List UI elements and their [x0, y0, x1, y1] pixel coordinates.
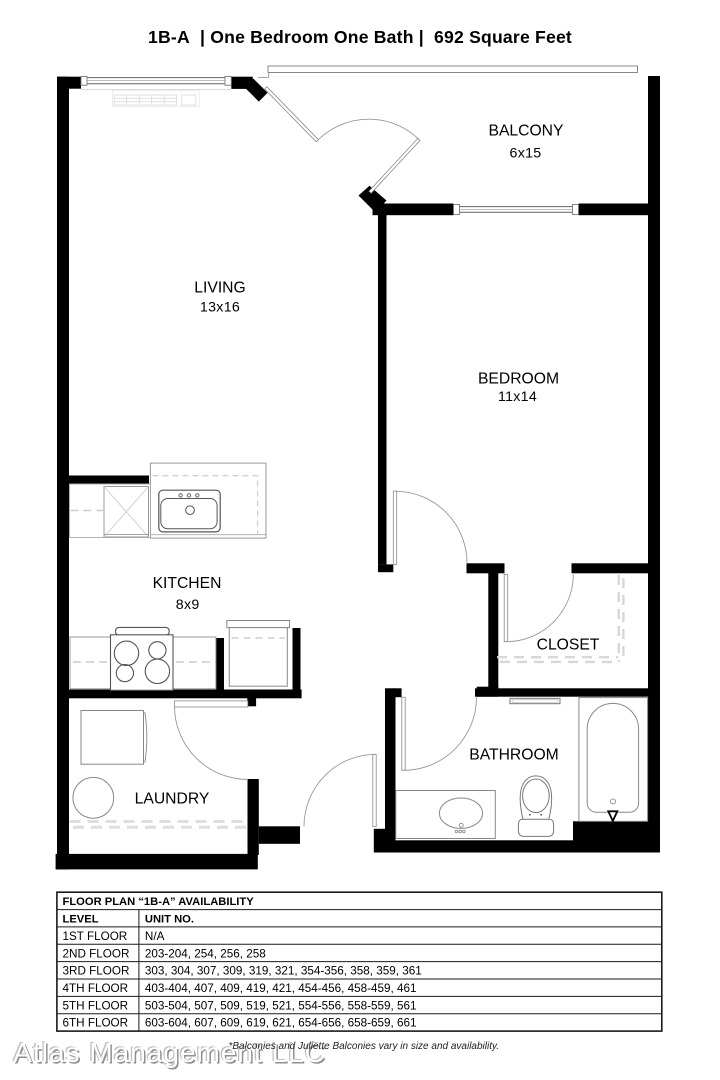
svg-text:603-604, 607, 609, 619, 621, 6: 603-604, 607, 609, 619, 621, 654-656, 65… — [145, 1017, 417, 1030]
svg-text:8x9: 8x9 — [176, 597, 200, 613]
svg-text:*Balconies and Juliette Balcon: *Balconies and Juliette Balconies vary i… — [229, 1041, 500, 1052]
svg-text:1ST FLOOR: 1ST FLOOR — [63, 930, 128, 943]
svg-text:N/A: N/A — [145, 930, 165, 943]
svg-text:503-504, 507, 509, 519, 521, 5: 503-504, 507, 509, 519, 521, 554-556, 55… — [145, 999, 417, 1012]
svg-text:403-404, 407, 409, 419, 421, 4: 403-404, 407, 409, 419, 421, 454-456, 45… — [145, 982, 417, 995]
svg-text:CLOSET: CLOSET — [537, 637, 600, 654]
svg-text:1B-A | One Bedroom One Bath |: 1B-A | One Bedroom One Bath | 692 Square… — [148, 27, 572, 47]
svg-text:BEDROOM: BEDROOM — [478, 371, 559, 388]
svg-text:6x15: 6x15 — [510, 146, 542, 162]
svg-text:11x14: 11x14 — [498, 389, 537, 405]
svg-text:LIVING: LIVING — [194, 280, 245, 297]
svg-text:3RD FLOOR: 3RD FLOOR — [63, 965, 130, 978]
svg-text:2ND FLOOR: 2ND FLOOR — [63, 947, 130, 960]
svg-text:4TH FLOOR: 4TH FLOOR — [63, 982, 129, 995]
svg-text:303, 304, 307, 309, 319, 321,: 303, 304, 307, 309, 319, 321, 354-356, 3… — [145, 965, 422, 978]
svg-text:13x16: 13x16 — [200, 300, 240, 316]
svg-text:LAUNDRY: LAUNDRY — [135, 791, 210, 808]
svg-text:BALCONY: BALCONY — [489, 123, 565, 140]
svg-text:FLOOR PLAN “1B-A” AVAILABILITY: FLOOR PLAN “1B-A” AVAILABILITY — [63, 896, 255, 908]
svg-text:5TH FLOOR: 5TH FLOOR — [63, 999, 129, 1012]
svg-text:6TH FLOOR: 6TH FLOOR — [63, 1017, 129, 1030]
svg-text:KITCHEN: KITCHEN — [153, 575, 222, 592]
svg-text:UNIT NO.: UNIT NO. — [145, 914, 194, 926]
svg-text:BATHROOM: BATHROOM — [469, 747, 558, 764]
svg-text:203-204, 254, 256, 258: 203-204, 254, 256, 258 — [145, 947, 266, 960]
svg-text:LEVEL: LEVEL — [63, 914, 99, 926]
